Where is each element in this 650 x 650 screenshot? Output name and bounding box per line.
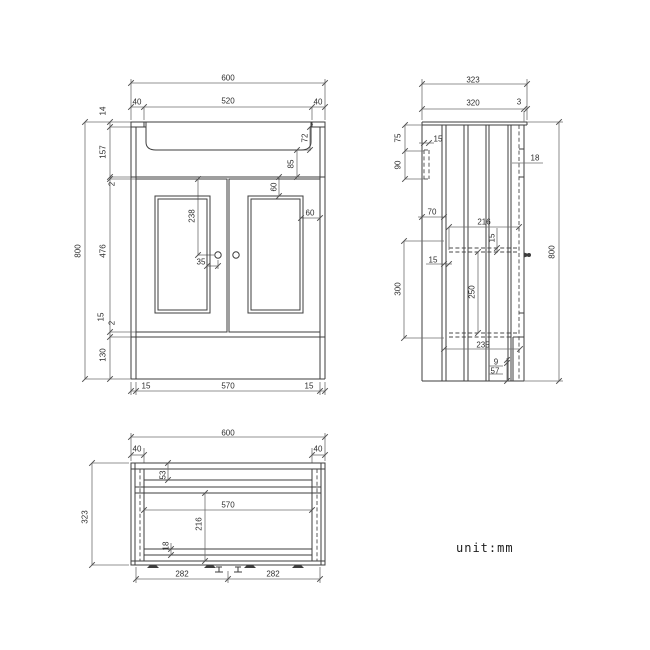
drawing-rect	[158, 199, 207, 310]
front-view: 6004052040800141572476152130728560602383…	[74, 74, 328, 396]
dimension-label: 18	[162, 541, 171, 550]
dimension-label: 60	[306, 209, 315, 218]
dimension-label: 70	[428, 208, 437, 217]
drawing-rect	[251, 199, 300, 310]
dimension-label: 570	[221, 501, 235, 510]
dimension-label: 15	[305, 382, 314, 391]
dimension-label: 72	[301, 133, 310, 142]
dimension-label: 15	[434, 135, 443, 144]
dimension-label: 570	[221, 382, 235, 391]
dimension-label: 323	[466, 76, 480, 85]
dimension-label: 235	[476, 341, 490, 350]
dimension-label: 15	[429, 256, 438, 265]
dimension-label: 40	[133, 445, 142, 454]
dimension-label: 2	[108, 320, 117, 325]
drawing-rect	[155, 196, 210, 313]
dimension-label: 250	[468, 285, 477, 299]
door-knob-circle	[233, 252, 239, 258]
side-view: 323320375159018702161515300250235957800	[394, 76, 564, 384]
dimension-label: 40	[133, 98, 142, 107]
dimension-label: 476	[99, 244, 108, 258]
dimension-label: 35	[197, 258, 206, 267]
drawing-rect	[136, 179, 227, 332]
dimension-label: 15	[488, 233, 497, 242]
cabinet-technical-drawing: 6004052040800141572476152130728560602383…	[0, 0, 650, 650]
dimension-label: 90	[394, 160, 403, 169]
dimension-label: 600	[221, 429, 235, 438]
dimension-label: 320	[466, 99, 480, 108]
dimension-label: 18	[531, 154, 540, 163]
dimension-label: 800	[74, 244, 83, 258]
dimension-label: 40	[314, 98, 323, 107]
dimension-label: 520	[221, 97, 235, 106]
dimension-label: 53	[159, 470, 168, 479]
drawing-rect	[229, 179, 320, 332]
dimension-label: 2	[108, 181, 117, 186]
dimension-label: 238	[188, 209, 197, 223]
door-knob-circle	[215, 252, 221, 258]
dimension-label: 14	[99, 106, 108, 115]
plan-view: 60040405357021618282282323	[81, 429, 328, 584]
technical-drawing-page: 6004052040800141572476152130728560602383…	[0, 0, 650, 650]
dimension-label: 800	[548, 245, 557, 259]
dimension-label: 15	[142, 382, 151, 391]
fitting-mark	[524, 253, 529, 258]
dimension-label: 40	[314, 445, 323, 454]
drawing-rect	[131, 122, 144, 127]
dimension-label: 157	[99, 145, 108, 159]
drawing-path	[146, 122, 311, 150]
dimension-label: 282	[266, 570, 280, 579]
dimension-label: 75	[394, 133, 403, 142]
dimension-label: 323	[81, 510, 90, 524]
drawing-rect	[312, 122, 325, 127]
dimension-label: 57	[491, 367, 500, 376]
dimension-label: 85	[287, 159, 296, 168]
dimension-label: 130	[99, 348, 108, 362]
dimension-label: 9	[494, 358, 499, 367]
drawing-rect	[248, 196, 303, 313]
dimension-label: 60	[270, 182, 279, 191]
dimension-label: 300	[394, 282, 403, 296]
dimension-label: 216	[195, 517, 204, 531]
dimension-label: 282	[175, 570, 189, 579]
dimension-label: 216	[477, 218, 491, 227]
dimension-label: 15	[97, 312, 106, 321]
unit-label: unit:mm	[456, 541, 514, 555]
dimension-label: 600	[221, 74, 235, 83]
dimension-label: 3	[517, 98, 522, 107]
